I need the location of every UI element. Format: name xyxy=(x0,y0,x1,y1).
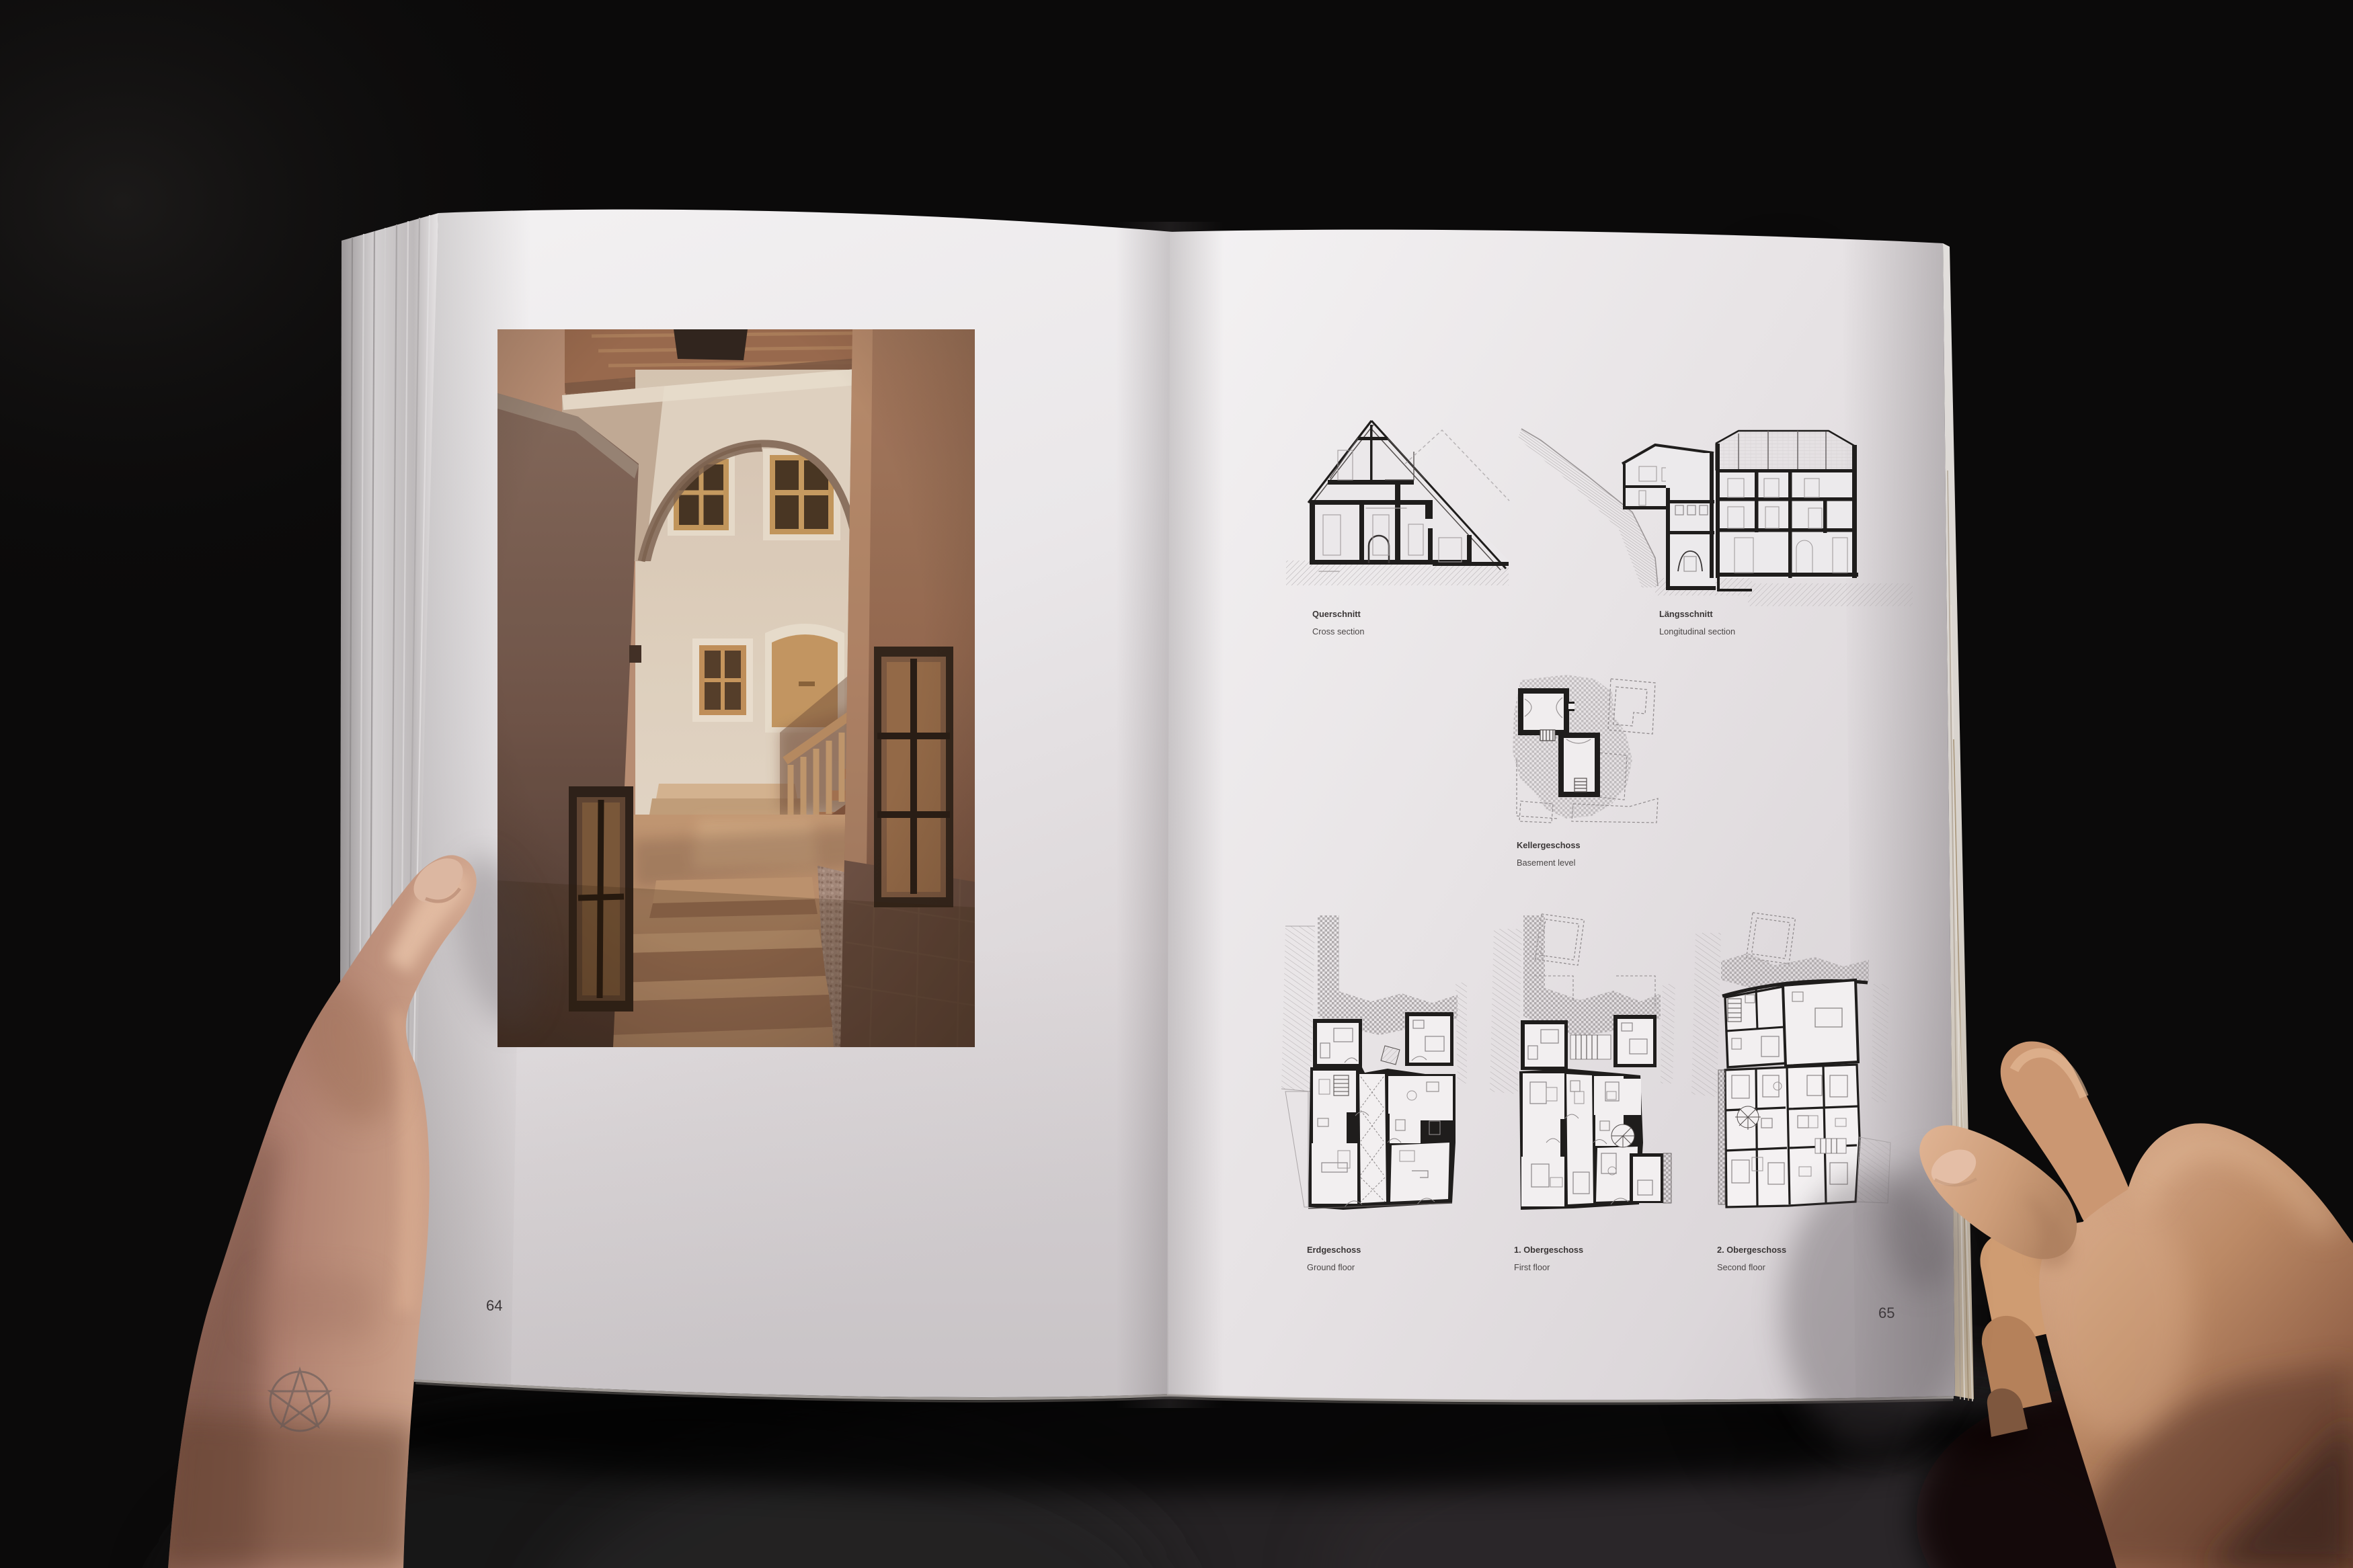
svg-text:Cross section: Cross section xyxy=(1312,626,1365,636)
svg-text:Basement level: Basement level xyxy=(1517,858,1576,868)
svg-text:Längsschnitt: Längsschnitt xyxy=(1659,609,1713,619)
svg-text:Kellergeschoss: Kellergeschoss xyxy=(1517,840,1581,850)
svg-text:First floor: First floor xyxy=(1514,1262,1550,1272)
svg-text:Ground floor: Ground floor xyxy=(1307,1262,1355,1272)
svg-text:64: 64 xyxy=(486,1297,502,1314)
svg-text:2. Obergeschoss: 2. Obergeschoss xyxy=(1717,1245,1786,1255)
svg-text:Longitudinal section: Longitudinal section xyxy=(1659,626,1735,636)
svg-text:1. Obergeschoss: 1. Obergeschoss xyxy=(1514,1245,1583,1255)
svg-text:Second floor: Second floor xyxy=(1717,1262,1766,1272)
svg-text:Querschnitt: Querschnitt xyxy=(1312,609,1361,619)
svg-text:Erdgeschoss: Erdgeschoss xyxy=(1307,1245,1361,1255)
